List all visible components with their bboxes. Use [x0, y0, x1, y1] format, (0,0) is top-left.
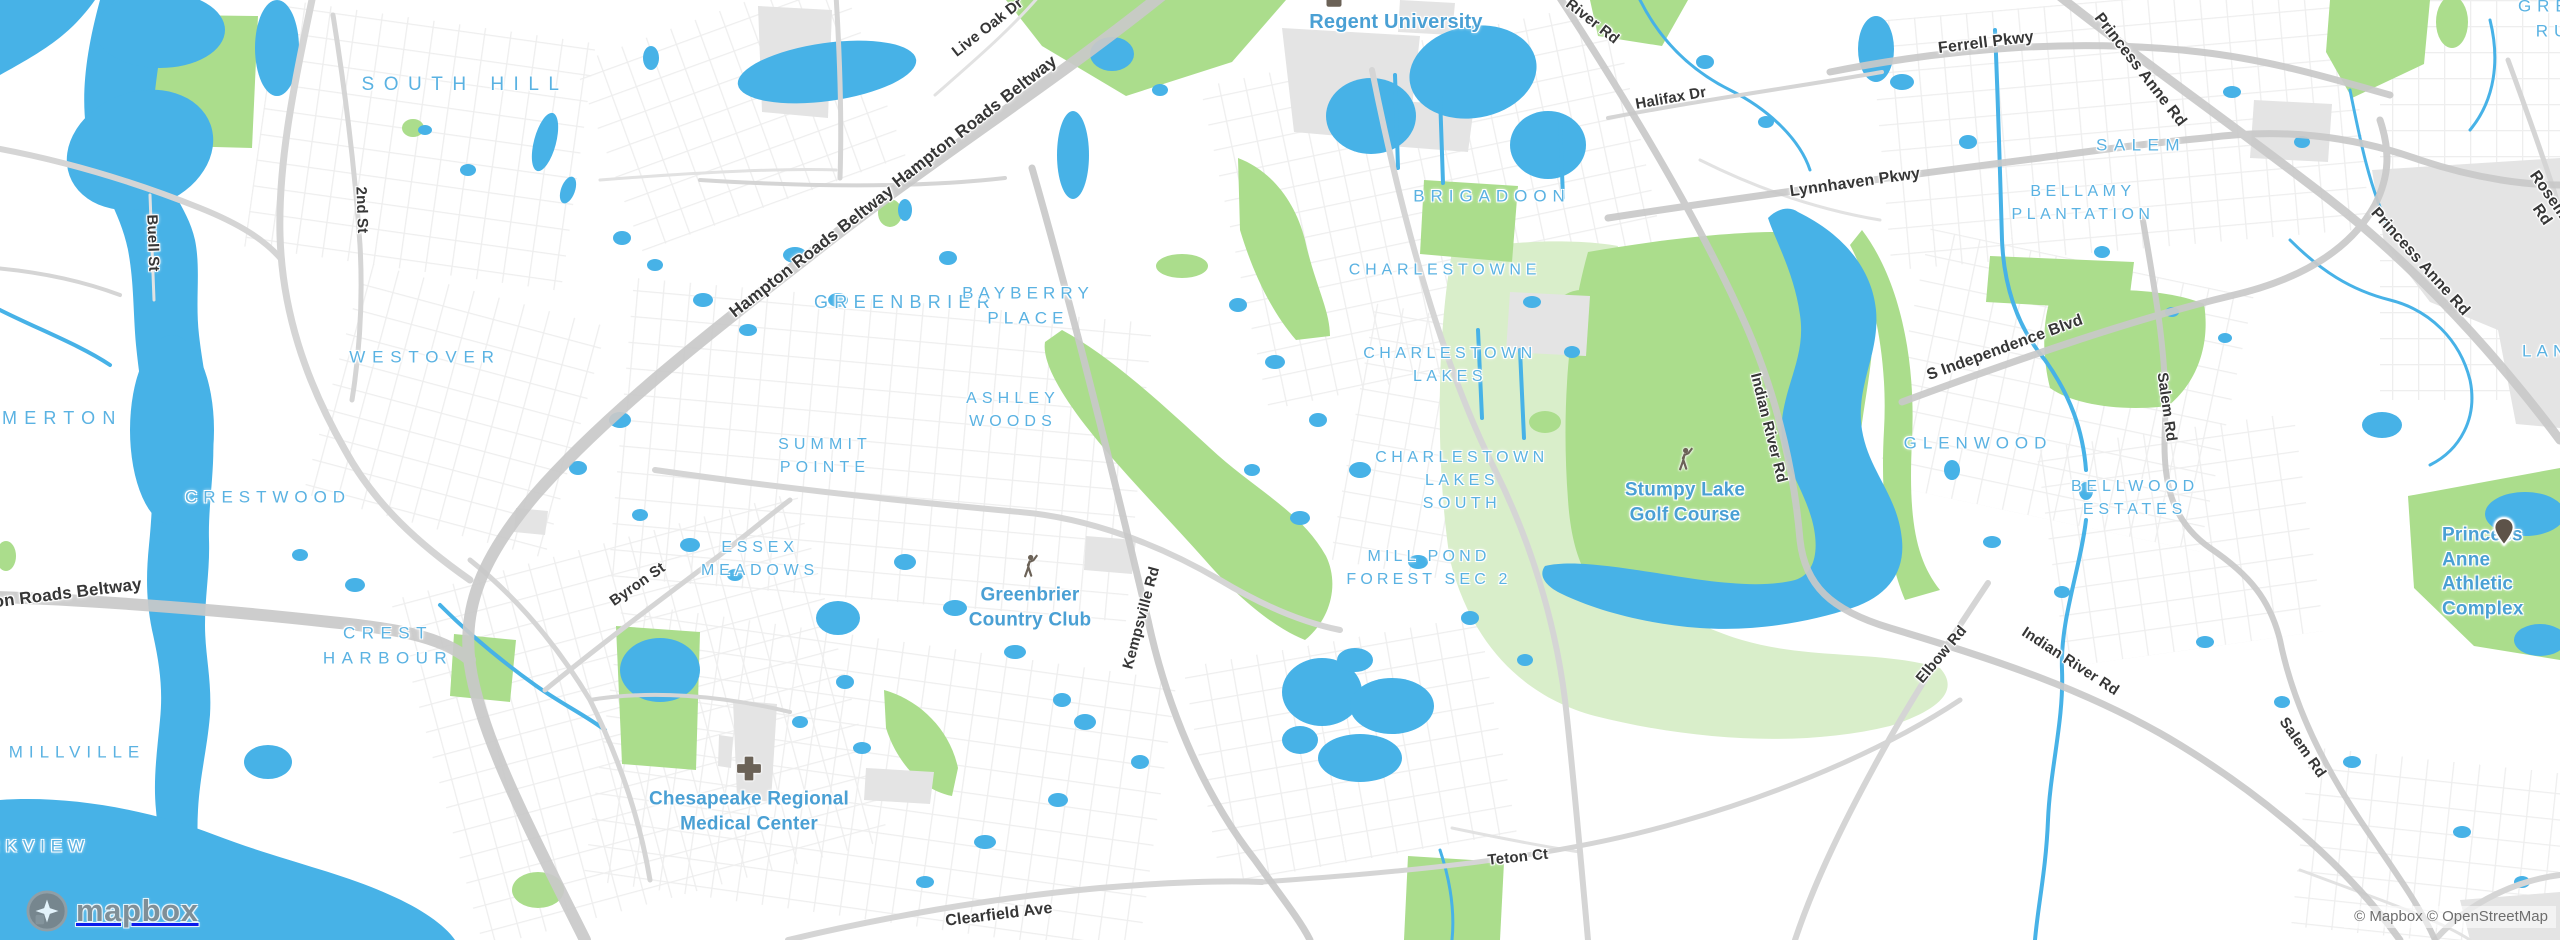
attribution[interactable]: © Mapbox © OpenStreetMap — [2344, 906, 2556, 928]
mapbox-logo-wordmark: mapbox — [76, 893, 199, 929]
map-canvas[interactable]: SOUTH HILLMERTONWESTOVERCRESTWOODCREST H… — [0, 0, 2560, 940]
map-tiles — [0, 0, 2560, 940]
mapbox-logo[interactable]: mapbox — [26, 890, 199, 932]
mapbox-logo-mark-icon — [26, 890, 68, 932]
